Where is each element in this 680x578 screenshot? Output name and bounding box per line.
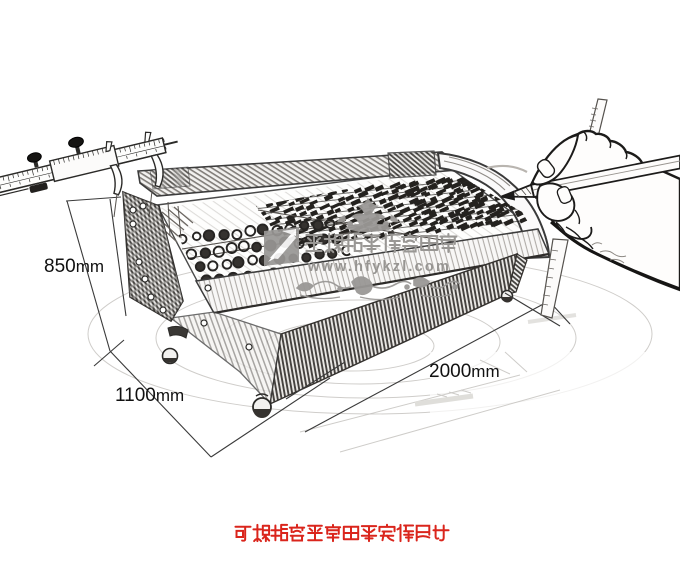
svg-text:1100mm: 1100mm: [115, 385, 184, 406]
svg-text:2000mm: 2000mm: [429, 361, 500, 382]
svg-text:850mm: 850mm: [44, 256, 104, 277]
svg-text:www.hfykzl.com: www.hfykzl.com: [307, 259, 451, 275]
